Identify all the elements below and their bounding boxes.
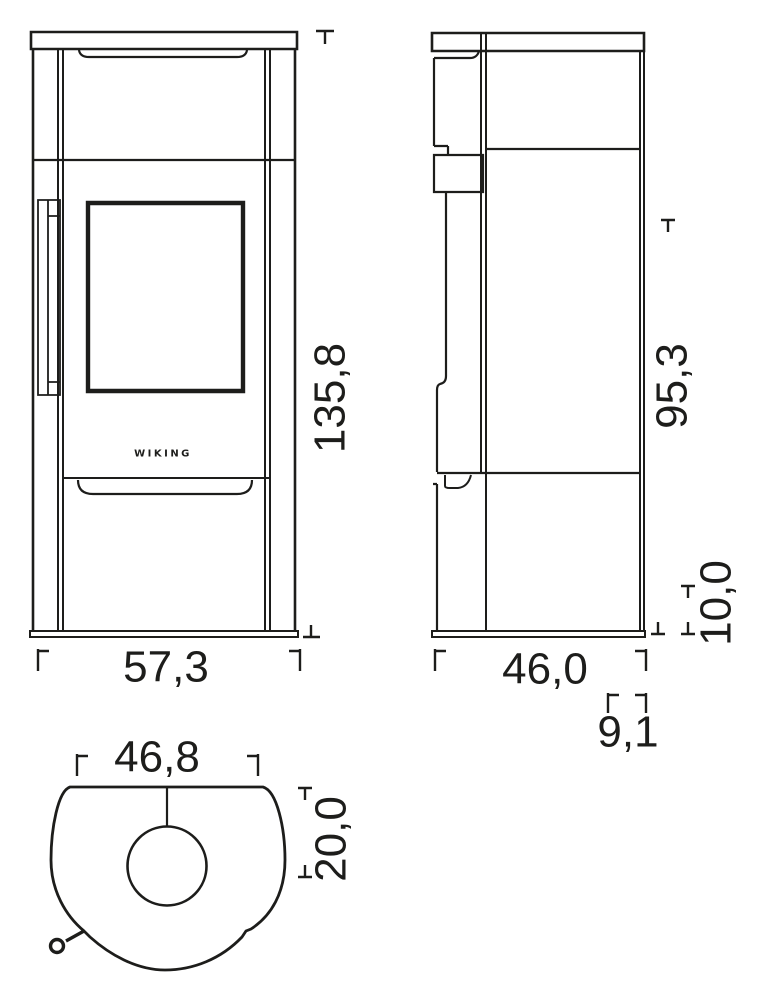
- side-latch-box: [434, 155, 483, 192]
- dim-tick-top: [661, 220, 675, 232]
- side-door-upper-profile: [434, 51, 479, 155]
- front-drawer-handle-lip: [78, 480, 252, 494]
- top-handle-stem: [66, 931, 84, 941]
- side-flue-offset-dimension: 9,1: [597, 693, 658, 757]
- front-height-label: 135,8: [306, 343, 355, 453]
- front-right-panel-seam: [265, 49, 270, 631]
- front-height-dimension: 135,8: [303, 31, 355, 637]
- brand-logo: WIKING: [134, 449, 192, 460]
- dim-tick-left: [435, 649, 446, 671]
- top-flue-outlet: [128, 827, 207, 906]
- dim-tick-top: [316, 31, 334, 44]
- dim-tick-left: [77, 754, 88, 776]
- front-width-dimension: 57,3: [38, 643, 300, 692]
- top-flue-depth-label: 20,0: [307, 796, 356, 882]
- front-view: WIKING 135,8 57,3: [30, 31, 355, 692]
- side-base-height-label: 10,0: [692, 560, 741, 646]
- front-top-handle-recess: [79, 50, 247, 57]
- side-height-dimension: 95,3: [648, 220, 697, 634]
- side-back-edge: [640, 51, 644, 631]
- side-top-plate: [432, 33, 644, 51]
- top-width-label: 46,8: [114, 733, 200, 782]
- side-view: 95,3 10,0 46,0 9,1: [432, 33, 741, 757]
- dim-tick-bottom: [651, 622, 665, 634]
- top-width-dimension: 46,8: [77, 733, 258, 782]
- dim-tick-left: [38, 649, 49, 671]
- front-door-hinge: [38, 200, 60, 395]
- front-width-label: 57,3: [123, 643, 209, 692]
- side-height-label: 95,3: [648, 343, 697, 429]
- side-door-bar: [437, 192, 446, 472]
- dim-tick-right: [289, 649, 300, 671]
- front-top-plate: [31, 32, 297, 49]
- side-depth-label: 46,0: [502, 645, 588, 694]
- top-flue-depth-dimension: 20,0: [298, 788, 356, 882]
- dim-tick-bottom: [303, 625, 320, 637]
- side-base-plate: [432, 631, 645, 637]
- side-lower-left-edge: [433, 484, 437, 631]
- top-handle-knob: [51, 940, 64, 953]
- top-view: 46,8 20,0: [51, 733, 356, 971]
- drawing-svg: WIKING 135,8 57,3 95,3: [0, 0, 757, 988]
- stove-dimension-drawing: WIKING 135,8 57,3 95,3: [0, 0, 757, 988]
- side-drawer-handle-notch: [445, 475, 471, 488]
- front-door-glass: [88, 203, 243, 391]
- side-flue-offset-label: 9,1: [597, 708, 658, 757]
- side-base-height-dimension: 10,0: [681, 560, 741, 646]
- dim-tick-right: [247, 754, 258, 776]
- dim-tick-right: [635, 649, 646, 671]
- side-depth-dimension: 46,0: [435, 645, 646, 694]
- front-base-plate: [30, 631, 298, 637]
